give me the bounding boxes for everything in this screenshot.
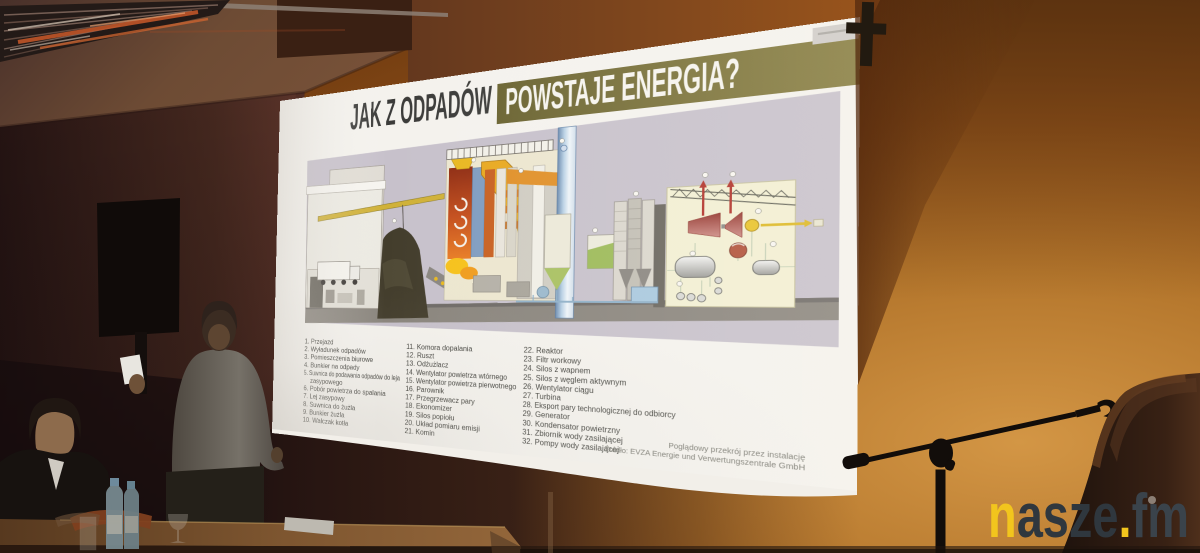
svg-text:nasze.fm: nasze.fm: [988, 482, 1189, 551]
